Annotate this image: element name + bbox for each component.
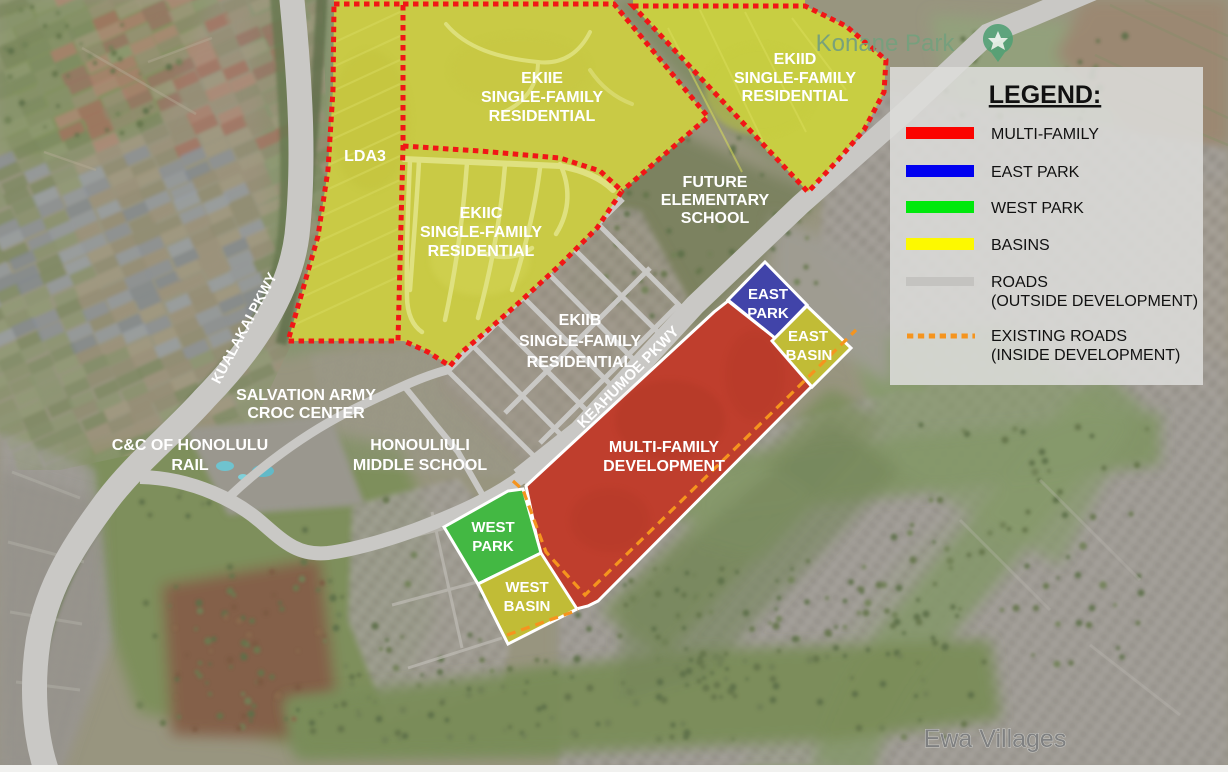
svg-text:HONOULIULI: HONOULIULI	[370, 437, 470, 454]
svg-text:ELEMENTARY: ELEMENTARY	[661, 192, 770, 209]
svg-text:RESIDENTIAL: RESIDENTIAL	[428, 243, 535, 260]
svg-text:BASINS: BASINS	[991, 237, 1050, 254]
svg-text:FUTURE: FUTURE	[683, 174, 748, 191]
svg-text:BASIN: BASIN	[504, 598, 551, 615]
svg-text:SINGLE-FAMILY: SINGLE-FAMILY	[519, 333, 641, 350]
svg-text:C&C OF HONOLULU: C&C OF HONOLULU	[112, 437, 268, 454]
svg-text:PARK: PARK	[472, 538, 514, 555]
svg-text:EAST PARK: EAST PARK	[991, 164, 1080, 181]
svg-text:WEST PARK: WEST PARK	[991, 200, 1084, 217]
svg-text:MULTI-FAMILY: MULTI-FAMILY	[991, 126, 1099, 143]
svg-text:SINGLE-FAMILY: SINGLE-FAMILY	[481, 89, 603, 106]
svg-text:(OUTSIDE DEVELOPMENT): (OUTSIDE DEVELOPMENT)	[991, 293, 1198, 310]
svg-text:PARK: PARK	[747, 305, 789, 322]
svg-text:(INSIDE DEVELOPMENT): (INSIDE DEVELOPMENT)	[991, 347, 1180, 364]
svg-text:LDA3: LDA3	[344, 148, 386, 165]
svg-text:SCHOOL: SCHOOL	[681, 210, 750, 227]
svg-text:MIDDLE SCHOOL: MIDDLE SCHOOL	[353, 457, 487, 474]
svg-text:SALVATION ARMY: SALVATION ARMY	[236, 387, 376, 404]
svg-text:EAST: EAST	[788, 328, 828, 345]
svg-text:EAST: EAST	[748, 286, 788, 303]
svg-text:RESIDENTIAL: RESIDENTIAL	[527, 354, 634, 371]
svg-text:RAIL: RAIL	[171, 457, 209, 474]
svg-text:CROC CENTER: CROC CENTER	[247, 405, 365, 422]
svg-text:EKIIE: EKIIE	[521, 70, 563, 87]
svg-text:RESIDENTIAL: RESIDENTIAL	[489, 108, 596, 125]
svg-text:SINGLE-FAMILY: SINGLE-FAMILY	[734, 70, 856, 87]
svg-text:EKIID: EKIID	[774, 51, 817, 68]
svg-text:Konane Park: Konane Park	[816, 30, 956, 57]
svg-text:ROADS: ROADS	[991, 274, 1048, 291]
svg-text:RESIDENTIAL: RESIDENTIAL	[742, 88, 849, 105]
svg-text:MULTI-FAMILY: MULTI-FAMILY	[609, 439, 720, 456]
svg-text:Ewa Villages: Ewa Villages	[924, 725, 1067, 753]
svg-text:SINGLE-FAMILY: SINGLE-FAMILY	[420, 224, 542, 241]
svg-text:LEGEND:: LEGEND:	[989, 81, 1102, 109]
svg-text:EKIIB: EKIIB	[559, 312, 602, 329]
svg-text:BASIN: BASIN	[786, 347, 833, 364]
svg-text:EKIIC: EKIIC	[460, 205, 503, 222]
svg-text:WEST: WEST	[471, 519, 514, 536]
svg-text:WEST: WEST	[505, 579, 548, 596]
svg-text:DEVELOPMENT: DEVELOPMENT	[603, 458, 725, 475]
svg-text:EXISTING ROADS: EXISTING ROADS	[991, 328, 1127, 345]
